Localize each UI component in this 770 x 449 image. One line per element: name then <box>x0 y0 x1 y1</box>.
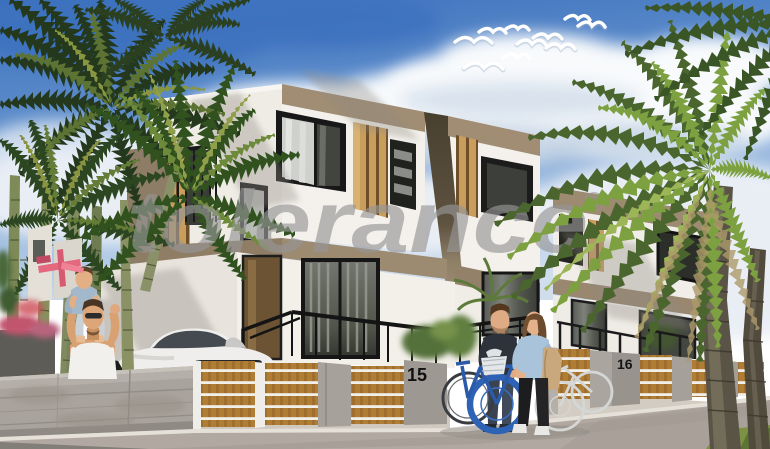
svg-text:tolerance: tolerance <box>127 173 589 271</box>
svg-text:16: 16 <box>617 356 633 372</box>
svg-text:15: 15 <box>407 365 427 385</box>
